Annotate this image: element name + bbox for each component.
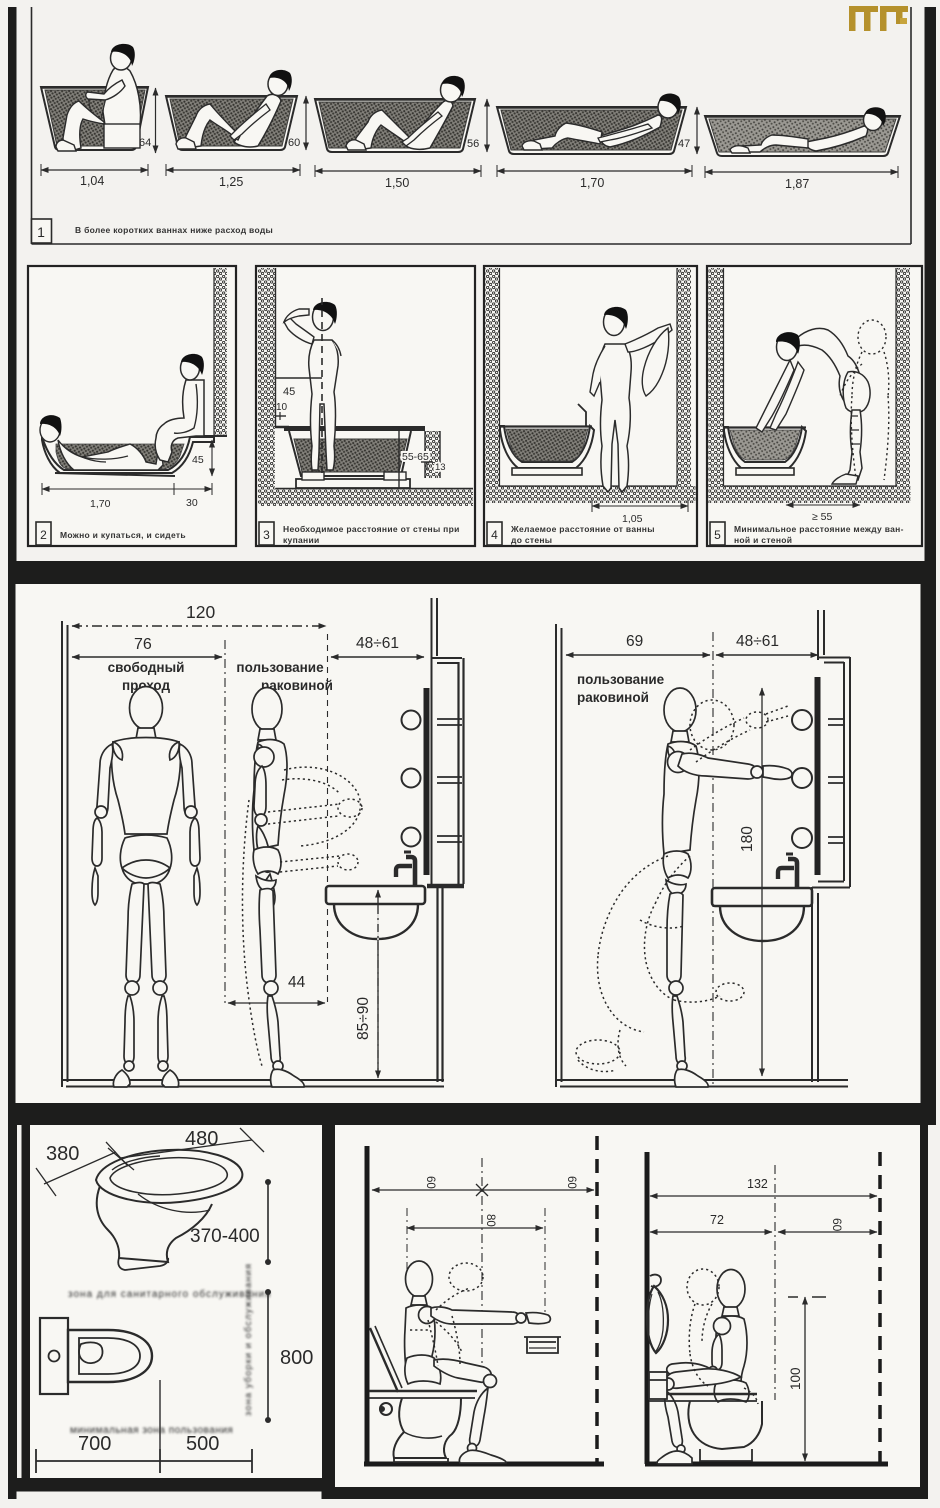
svg-text:пользование: пользование [577, 672, 665, 687]
svg-text:69: 69 [626, 633, 643, 650]
svg-text:1,70: 1,70 [90, 498, 111, 510]
svg-text:180: 180 [739, 826, 756, 852]
svg-text:120: 120 [186, 602, 215, 622]
svg-text:72: 72 [710, 1213, 724, 1227]
svg-text:5: 5 [714, 528, 721, 542]
svg-text:55-65: 55-65 [402, 451, 429, 463]
svg-text:500: 500 [186, 1433, 219, 1455]
svg-text:1,87: 1,87 [785, 177, 809, 191]
svg-text:48÷61: 48÷61 [356, 635, 399, 652]
svg-text:4: 4 [491, 528, 498, 542]
svg-text:1,70: 1,70 [580, 176, 604, 190]
svg-text:купании: купании [283, 535, 320, 545]
svg-text:Можно и купаться, и сидеть: Можно и купаться, и сидеть [60, 530, 186, 540]
svg-text:100: 100 [788, 1367, 803, 1390]
svg-text:60: 60 [565, 1176, 577, 1189]
svg-text:Желаемое расстояние от ванны: Желаемое расстояние от ванны [510, 524, 655, 534]
svg-text:45: 45 [283, 386, 295, 398]
svg-text:10: 10 [276, 402, 288, 413]
svg-text:2: 2 [40, 528, 47, 542]
svg-text:1,04: 1,04 [80, 174, 104, 188]
svg-text:13: 13 [435, 462, 446, 473]
svg-text:1,25: 1,25 [219, 175, 243, 189]
svg-text:до стены: до стены [511, 535, 552, 545]
svg-text:60: 60 [424, 1176, 436, 1189]
svg-text:800: 800 [280, 1347, 313, 1369]
svg-text:45: 45 [192, 454, 204, 466]
svg-text:Необходимое расстояние от стен: Необходимое расстояние от стены при [283, 524, 460, 534]
svg-text:700: 700 [78, 1433, 111, 1455]
svg-text:380: 380 [46, 1143, 79, 1165]
svg-text:64: 64 [139, 137, 151, 149]
svg-text:зона уборки и обслуживания: зона уборки и обслуживания [243, 1263, 254, 1416]
svg-text:47: 47 [678, 138, 690, 150]
svg-text:60: 60 [288, 137, 300, 149]
svg-text:85÷90: 85÷90 [355, 997, 372, 1040]
svg-text:пользование: пользование [236, 660, 324, 675]
svg-text:370-400: 370-400 [190, 1226, 260, 1247]
svg-text:60: 60 [830, 1218, 844, 1232]
svg-text:1: 1 [37, 224, 45, 240]
svg-text:свободный: свободный [108, 660, 185, 675]
svg-text:30: 30 [186, 497, 198, 509]
svg-text:480: 480 [185, 1128, 218, 1150]
svg-text:зона для санитарного обслужива: зона для санитарного обслуживания [68, 1288, 272, 1300]
svg-text:132: 132 [747, 1177, 768, 1191]
svg-text:раковиной: раковиной [577, 690, 649, 705]
svg-text:48÷61: 48÷61 [736, 633, 779, 650]
svg-text:В более коротких ваннах ниже р: В более коротких ваннах ниже расход воды [75, 225, 273, 235]
svg-text:1,50: 1,50 [385, 176, 409, 190]
svg-text:76: 76 [134, 636, 152, 653]
svg-text:≥ 55: ≥ 55 [812, 511, 833, 523]
svg-text:56: 56 [467, 138, 479, 150]
svg-text:80: 80 [484, 1214, 496, 1227]
svg-text:ной и стеной: ной и стеной [734, 535, 792, 545]
svg-text:44: 44 [288, 974, 306, 991]
svg-text:3: 3 [263, 528, 270, 542]
svg-text:Минимальное расстояние между в: Минимальное расстояние между ван- [734, 524, 904, 534]
